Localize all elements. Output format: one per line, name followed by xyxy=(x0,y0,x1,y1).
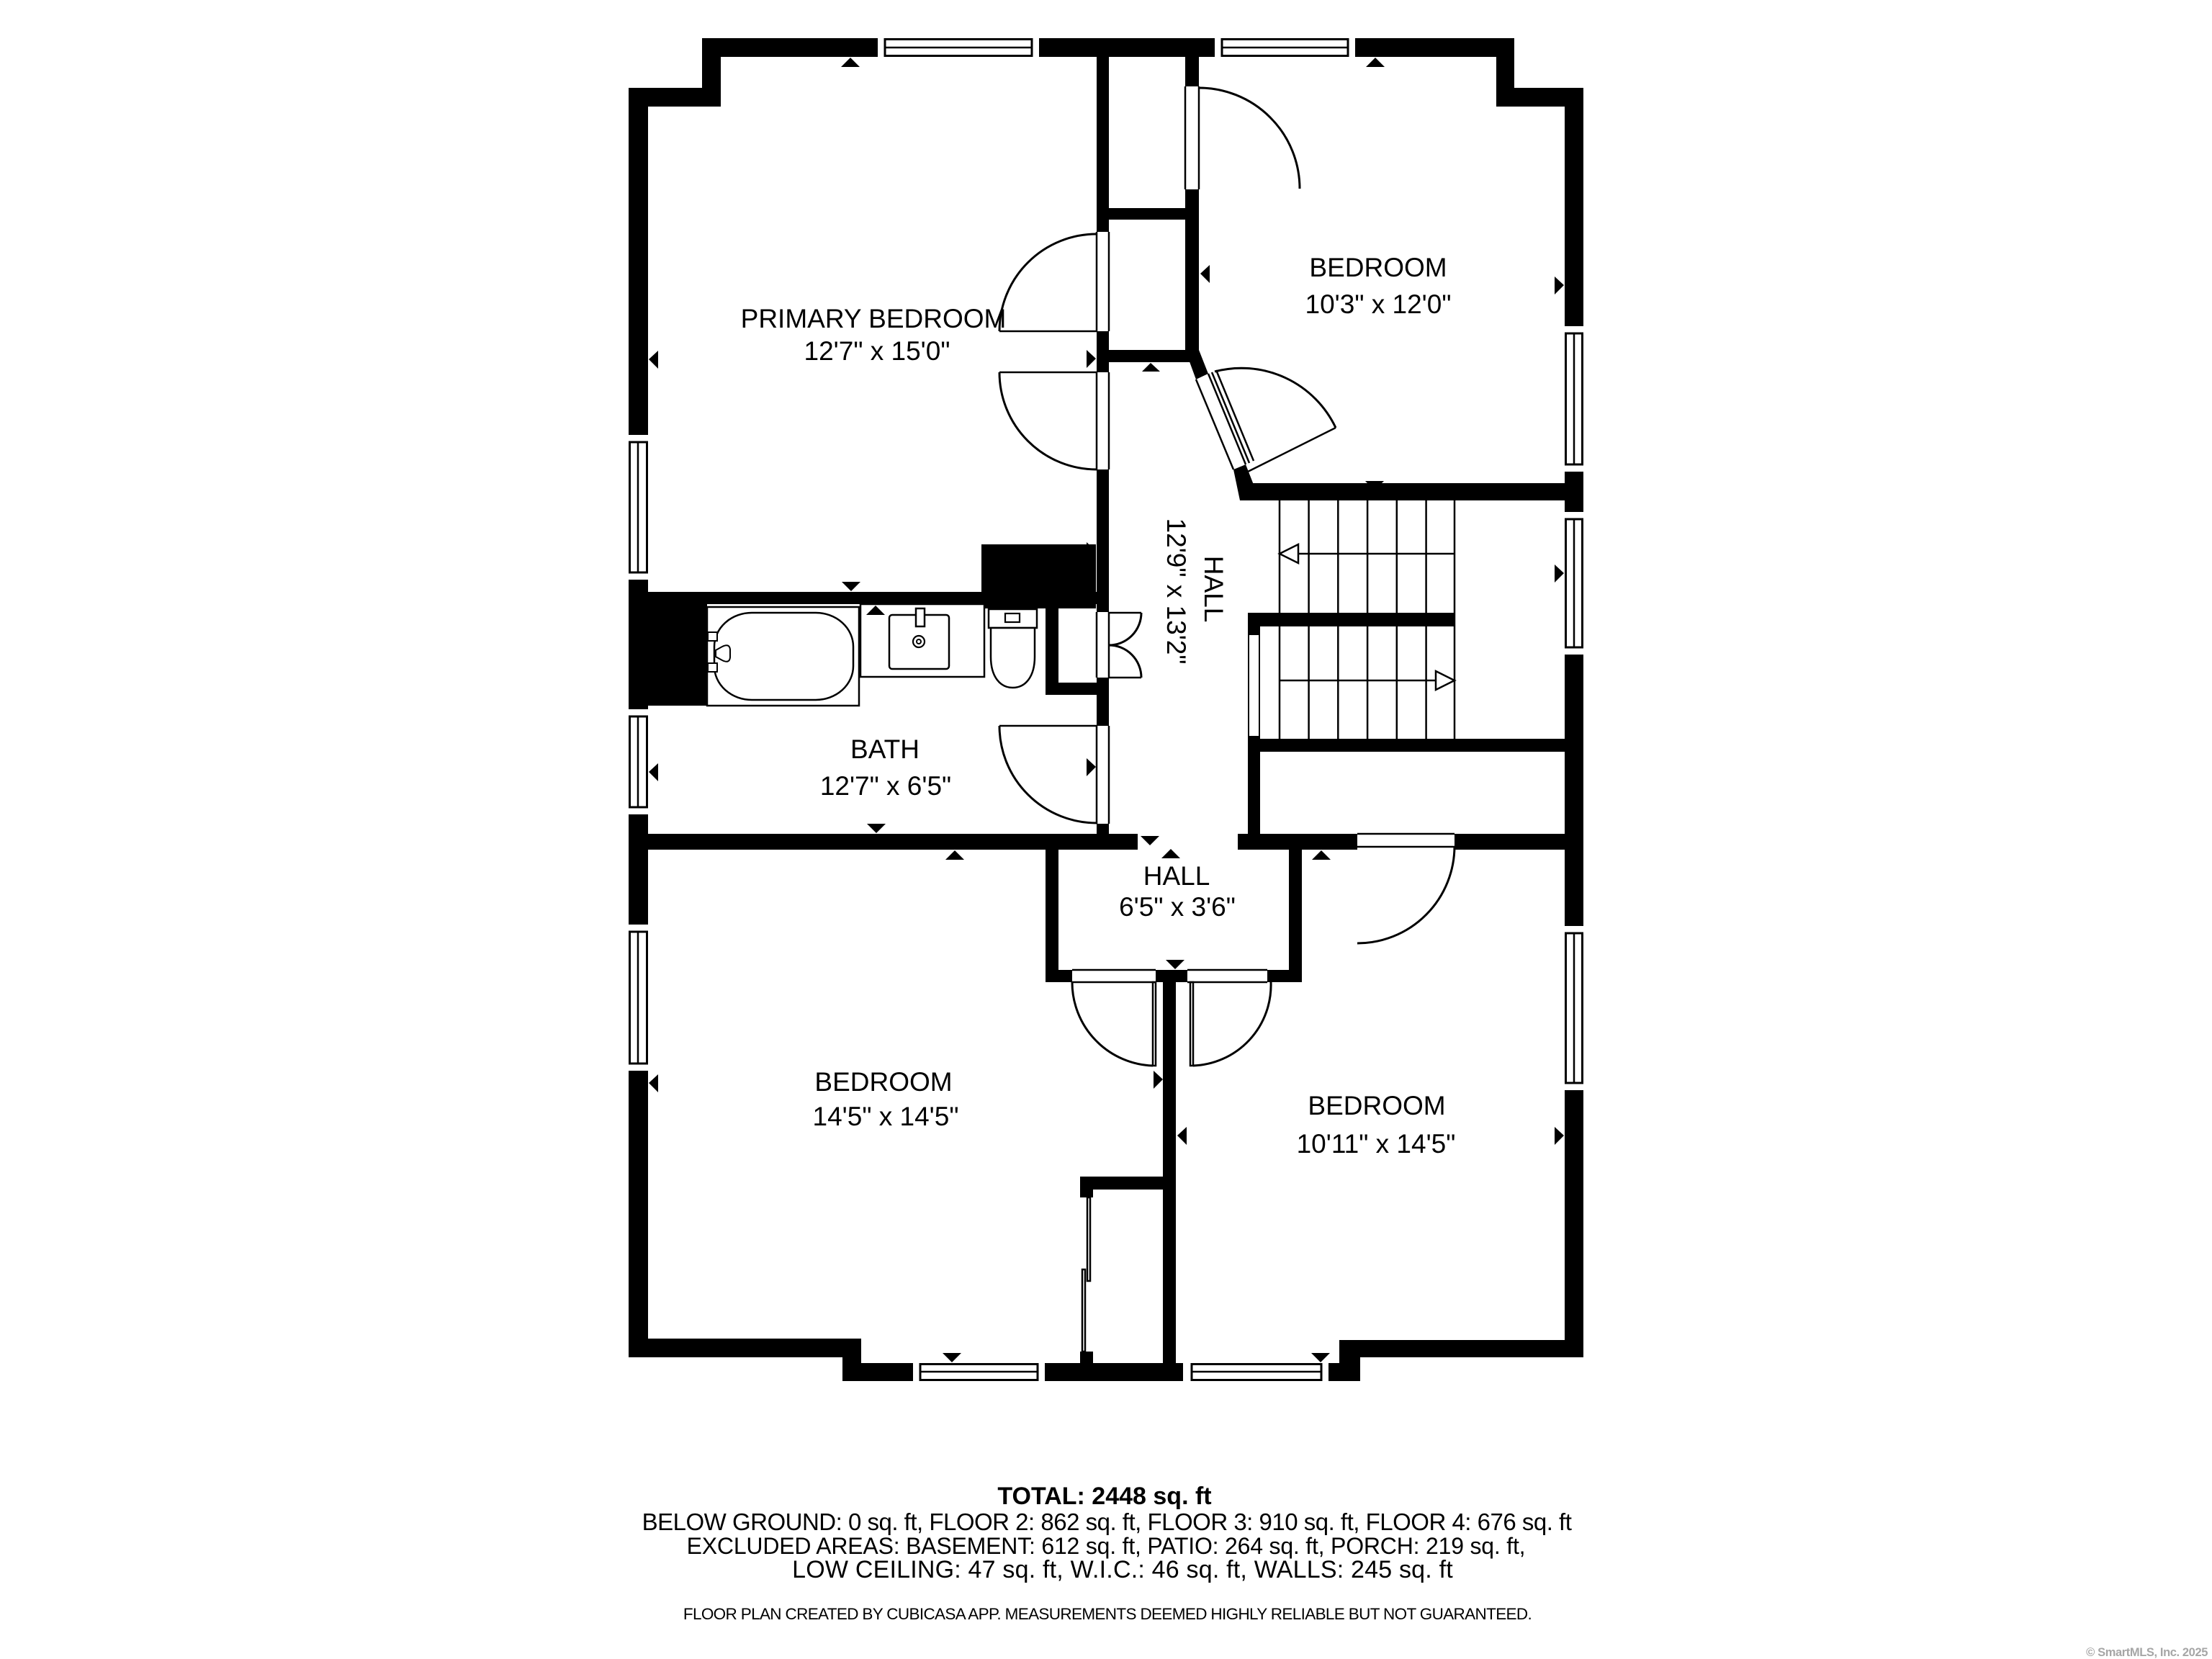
svg-text:12'9" x 13'2": 12'9" x 13'2" xyxy=(1161,518,1191,665)
svg-text:BEDROOM: BEDROOM xyxy=(814,1067,952,1097)
svg-text:14'5" x 14'5": 14'5" x 14'5" xyxy=(813,1102,959,1131)
svg-text:PRIMARY BEDROOM: PRIMARY BEDROOM xyxy=(741,304,1007,333)
svg-text:10'3" x 12'0": 10'3" x 12'0" xyxy=(1305,289,1452,319)
svg-text:EXCLUDED AREAS: BASEMENT: 612: EXCLUDED AREAS: BASEMENT: 612 sq. ft, PA… xyxy=(687,1533,1526,1559)
svg-text:12'7" x 15'0": 12'7" x 15'0" xyxy=(804,336,950,366)
svg-text:BEDROOM: BEDROOM xyxy=(1309,253,1447,282)
svg-text:LOW CEILING: 47 sq. ft, W.I.C.: LOW CEILING: 47 sq. ft, W.I.C.: 46 sq. f… xyxy=(792,1556,1453,1583)
svg-text:TOTAL: 2448 sq. ft: TOTAL: 2448 sq. ft xyxy=(997,1483,1211,1510)
svg-text:© SmartMLS, Inc. 2025: © SmartMLS, Inc. 2025 xyxy=(2086,1646,2208,1659)
svg-text:FLOOR PLAN CREATED BY CUBICASA: FLOOR PLAN CREATED BY CUBICASA APP. MEAS… xyxy=(683,1605,1532,1623)
svg-text:HALL: HALL xyxy=(1143,861,1210,891)
svg-text:HALL: HALL xyxy=(1199,556,1228,623)
svg-text:BATH: BATH xyxy=(850,734,920,764)
svg-text:6'5" x 3'6": 6'5" x 3'6" xyxy=(1119,892,1236,922)
svg-text:10'11" x 14'5": 10'11" x 14'5" xyxy=(1297,1129,1456,1159)
svg-text:12'7" x 6'5": 12'7" x 6'5" xyxy=(820,771,951,801)
svg-text:BEDROOM: BEDROOM xyxy=(1308,1091,1445,1120)
svg-text:BELOW GROUND: 0 sq. ft, FLOOR: BELOW GROUND: 0 sq. ft, FLOOR 2: 862 sq.… xyxy=(642,1509,1572,1535)
